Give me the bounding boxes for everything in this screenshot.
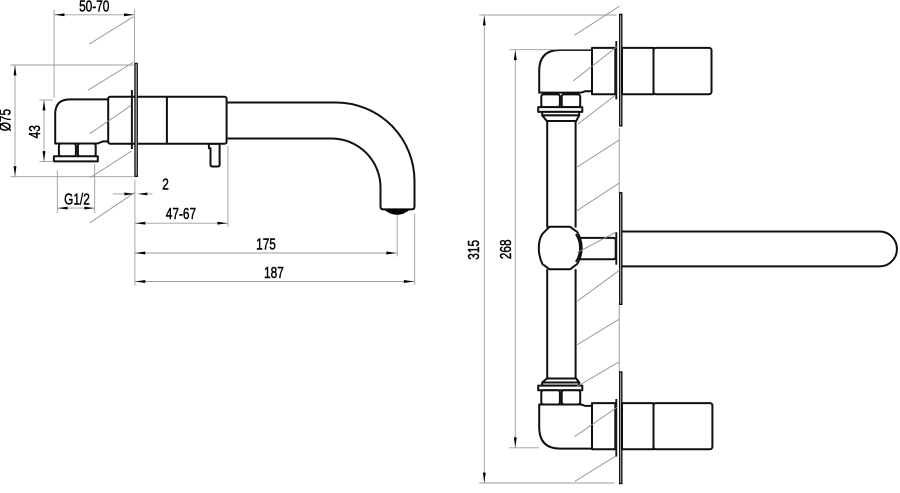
svg-text:43: 43 bbox=[27, 125, 44, 138]
svg-text:Ø75: Ø75 bbox=[0, 109, 15, 132]
svg-text:315: 315 bbox=[466, 240, 483, 260]
svg-text:268: 268 bbox=[498, 239, 515, 259]
svg-text:2: 2 bbox=[162, 176, 169, 193]
svg-text:187: 187 bbox=[264, 265, 284, 282]
svg-text:50-70: 50-70 bbox=[79, 0, 109, 15]
svg-text:47-67: 47-67 bbox=[166, 206, 196, 223]
svg-text:175: 175 bbox=[256, 237, 276, 254]
svg-text:G1/2: G1/2 bbox=[64, 192, 90, 209]
